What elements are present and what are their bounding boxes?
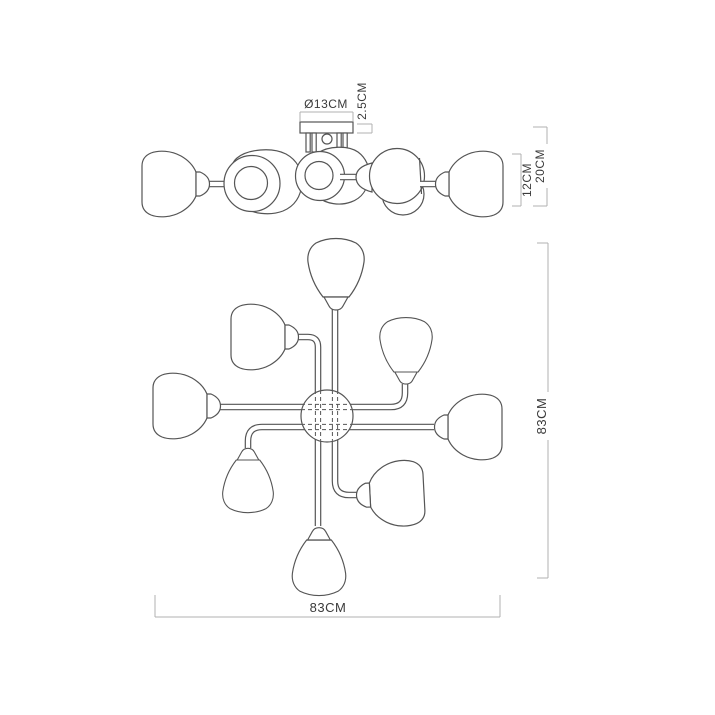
right-profile-shade: [436, 151, 504, 217]
shade-top: [308, 239, 364, 311]
left-profile-shade: [142, 151, 210, 217]
dimension-label: 20CM: [533, 149, 547, 183]
side-elevation-view: Ø13CM 2.5CM 12CM 20CM: [142, 82, 549, 217]
dimension-plan-height: 83CM: [534, 243, 551, 578]
center-knob: [322, 134, 332, 144]
shade-left: [153, 373, 221, 439]
dimension-fixture-height: 20CM: [533, 127, 549, 206]
dimension-label: 12CM: [520, 163, 534, 197]
mounting-rod: [312, 133, 316, 152]
dimension-canopy-thickness: 2.5CM: [355, 82, 372, 133]
shade-upper-left: [231, 304, 299, 370]
plan-view: 83CM 83CM: [153, 239, 551, 618]
mounting-rod: [306, 133, 310, 152]
dimension-shade-height: 12CM: [512, 154, 534, 206]
round-shade: [370, 149, 425, 204]
shade-lower-right: [355, 459, 426, 528]
canopy: [301, 390, 353, 442]
shade-lower-left: [223, 448, 274, 512]
shade-upper-right: [380, 318, 432, 384]
end-on-shade: [224, 156, 280, 212]
dimension-plan-width: 83CM: [155, 595, 500, 617]
chandelier-technical-drawing: Ø13CM 2.5CM 12CM 20CM: [0, 0, 715, 715]
dimension-label: 83CM: [534, 398, 549, 435]
dimension-label: 2.5CM: [355, 82, 369, 120]
dimension-label: Ø13CM: [304, 97, 348, 111]
shade-right: [435, 394, 503, 460]
drawing-sheet: Ø13CM 2.5CM 12CM 20CM: [0, 0, 715, 715]
dimension-canopy-diameter: Ø13CM: [300, 97, 353, 121]
end-on-shade: [296, 152, 345, 201]
shade-bottom: [292, 528, 346, 596]
dimension-label: 83CM: [310, 600, 347, 615]
